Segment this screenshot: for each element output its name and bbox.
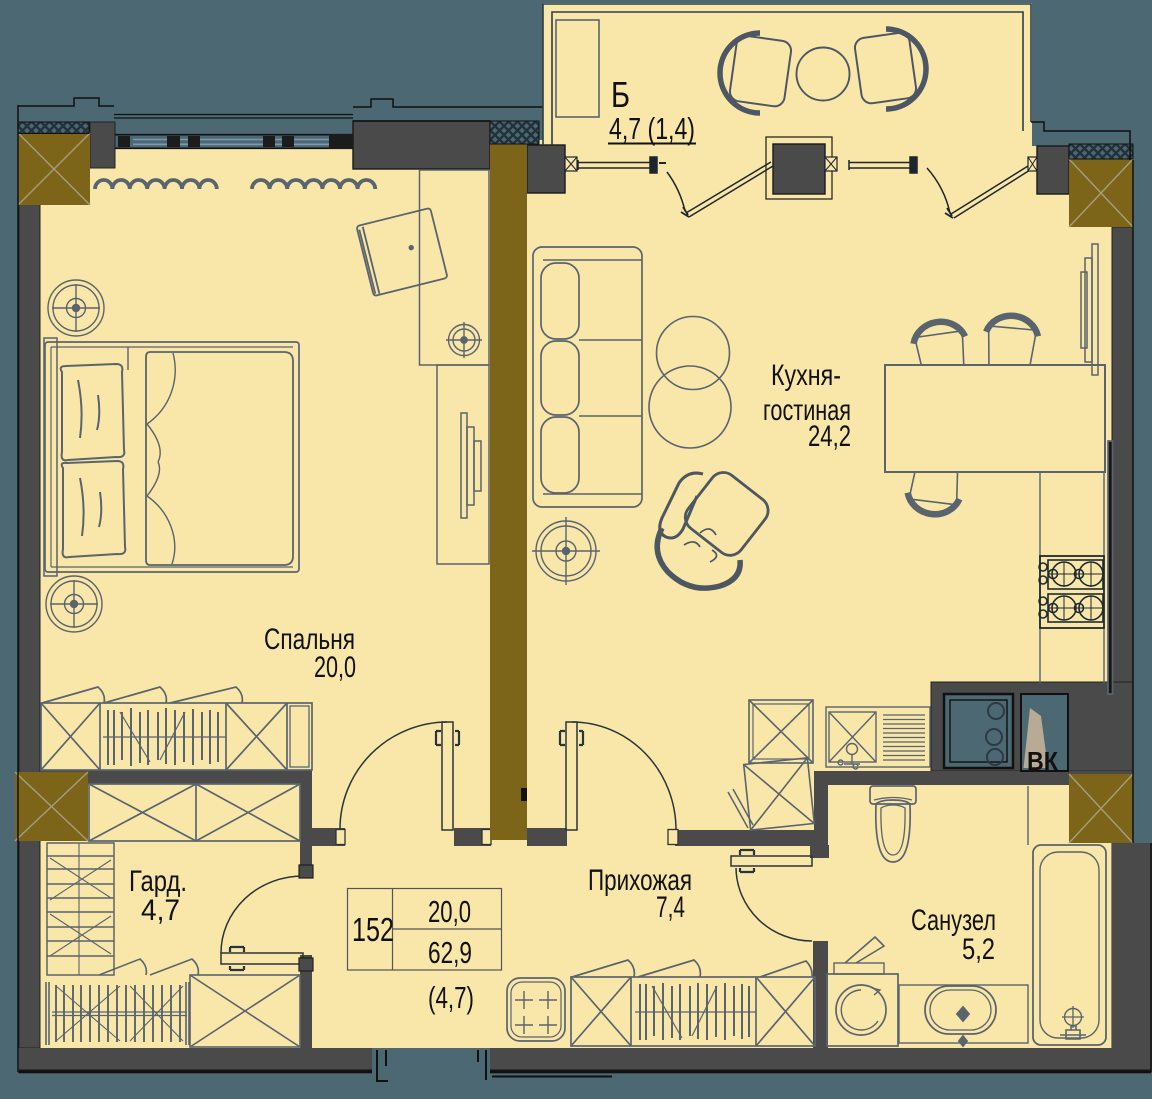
svg-text:4,7: 4,7 — [141, 894, 180, 927]
svg-text:Кухня-: Кухня- — [771, 359, 841, 392]
svg-text:Б: Б — [611, 74, 630, 115]
svg-text:4,7 (1,4): 4,7 (1,4) — [609, 111, 695, 146]
svg-text:20,0: 20,0 — [428, 894, 471, 929]
svg-text:62,9: 62,9 — [428, 935, 472, 970]
svg-text:(4,7): (4,7) — [428, 980, 474, 1015]
svg-text:7,4: 7,4 — [656, 891, 685, 924]
svg-text:20,0: 20,0 — [314, 651, 356, 684]
svg-text:24,2: 24,2 — [808, 420, 851, 453]
svg-text:5,2: 5,2 — [962, 933, 995, 966]
svg-text:152: 152 — [352, 911, 394, 948]
svg-text:ВК: ВК — [1027, 746, 1058, 776]
